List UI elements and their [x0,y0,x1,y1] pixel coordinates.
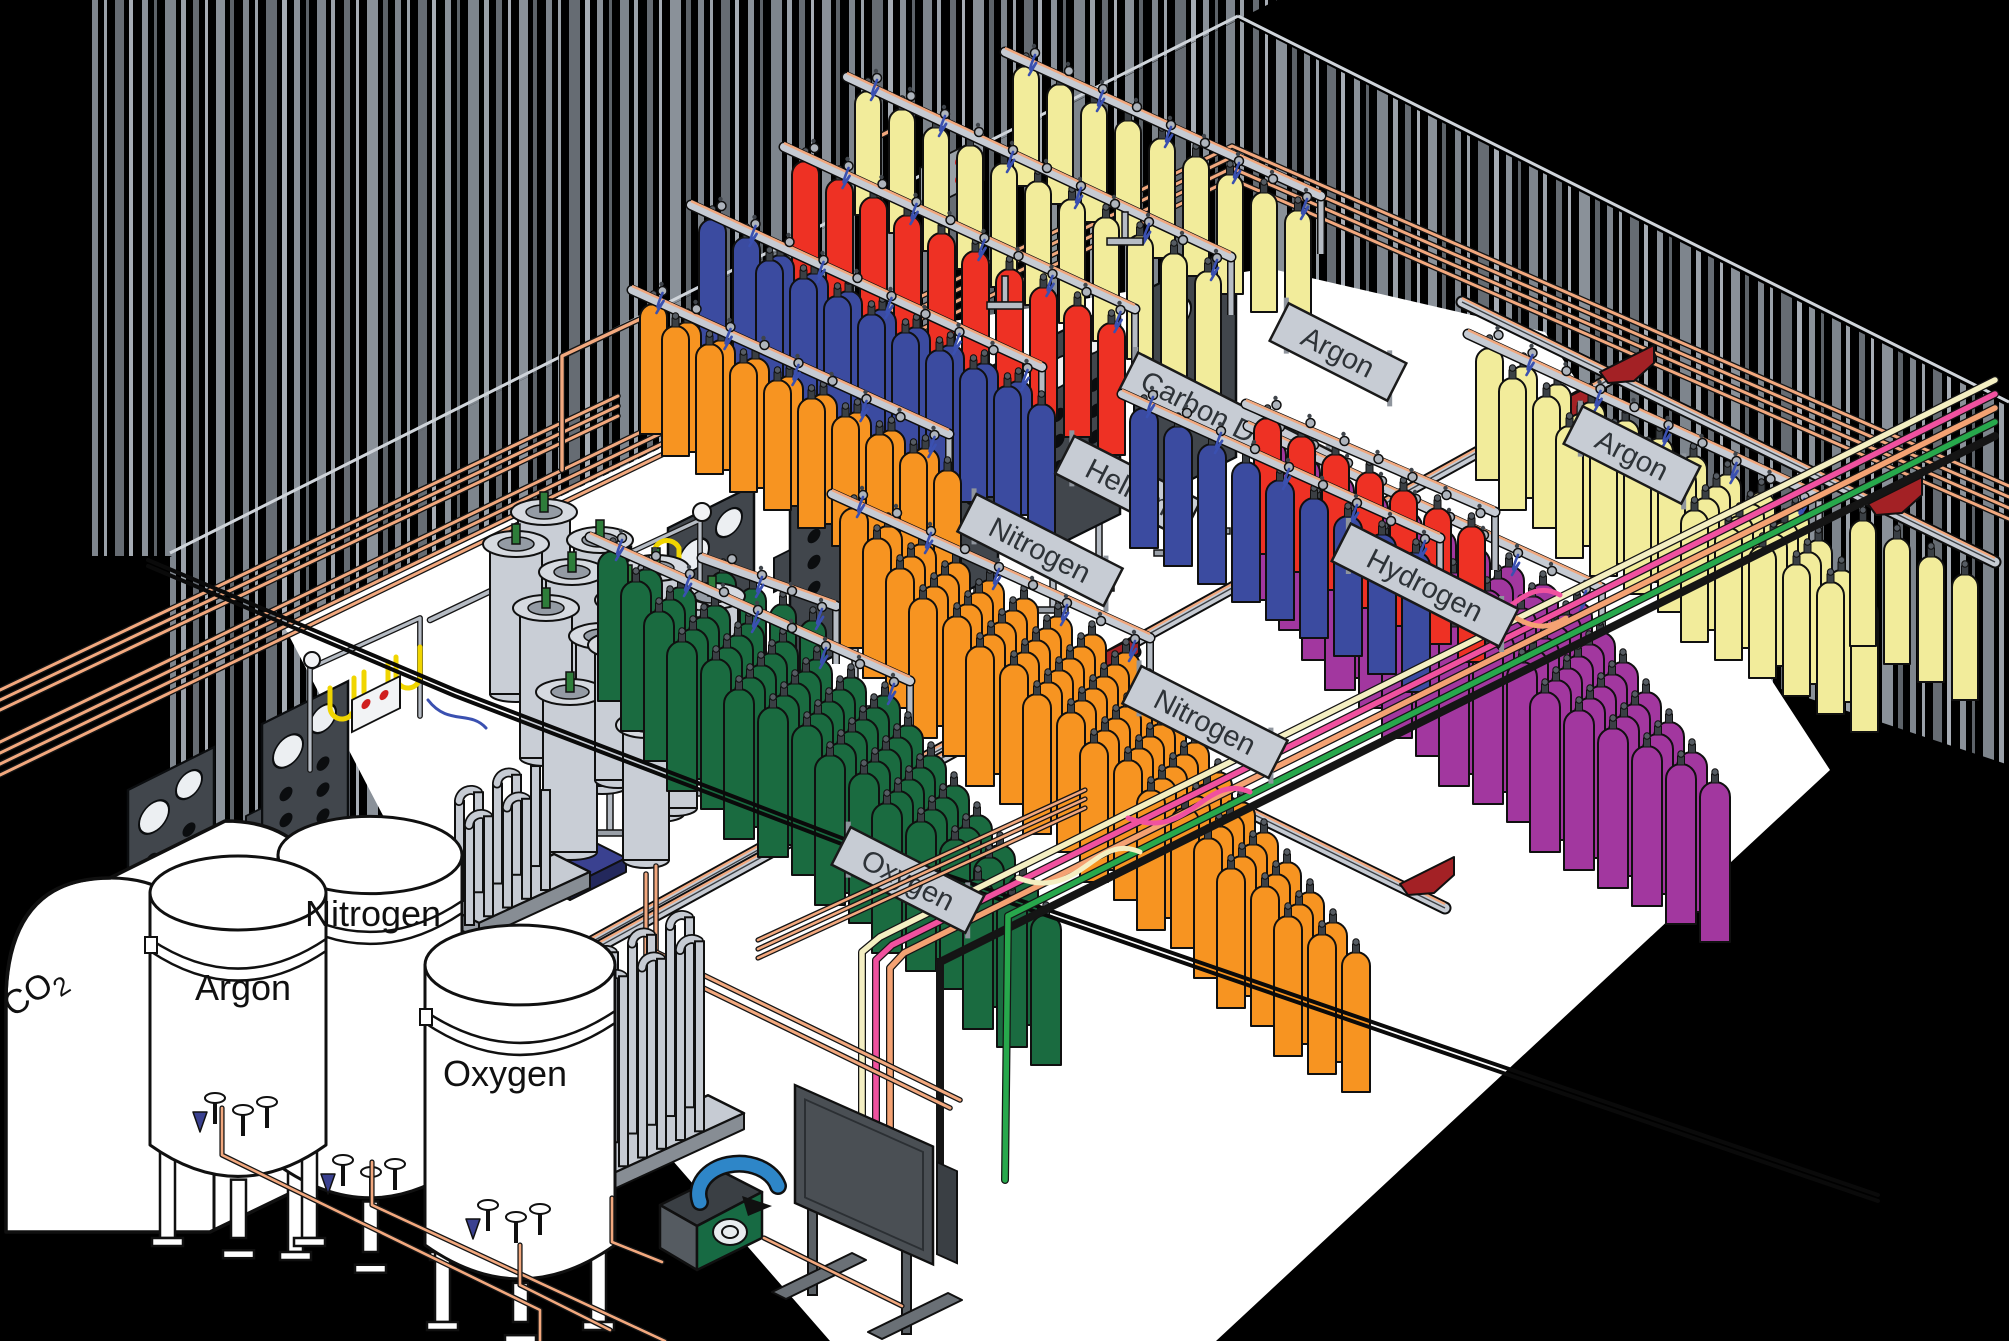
tank-label-text: Nitrogen [305,893,441,934]
tank-label: Argon [195,967,291,1008]
isometric-scene: OxygenNitrogenHeliumCarbon DioxideArgonO… [0,0,2009,1341]
tank-label-text: Oxygen [443,1053,567,1094]
gas-plant-illustration: OxygenNitrogenHeliumCarbon DioxideArgonO… [0,0,2009,1341]
tank-label: Oxygen [443,1053,567,1094]
tank-label: Nitrogen [305,893,441,934]
tank-label-text: Argon [195,967,291,1008]
